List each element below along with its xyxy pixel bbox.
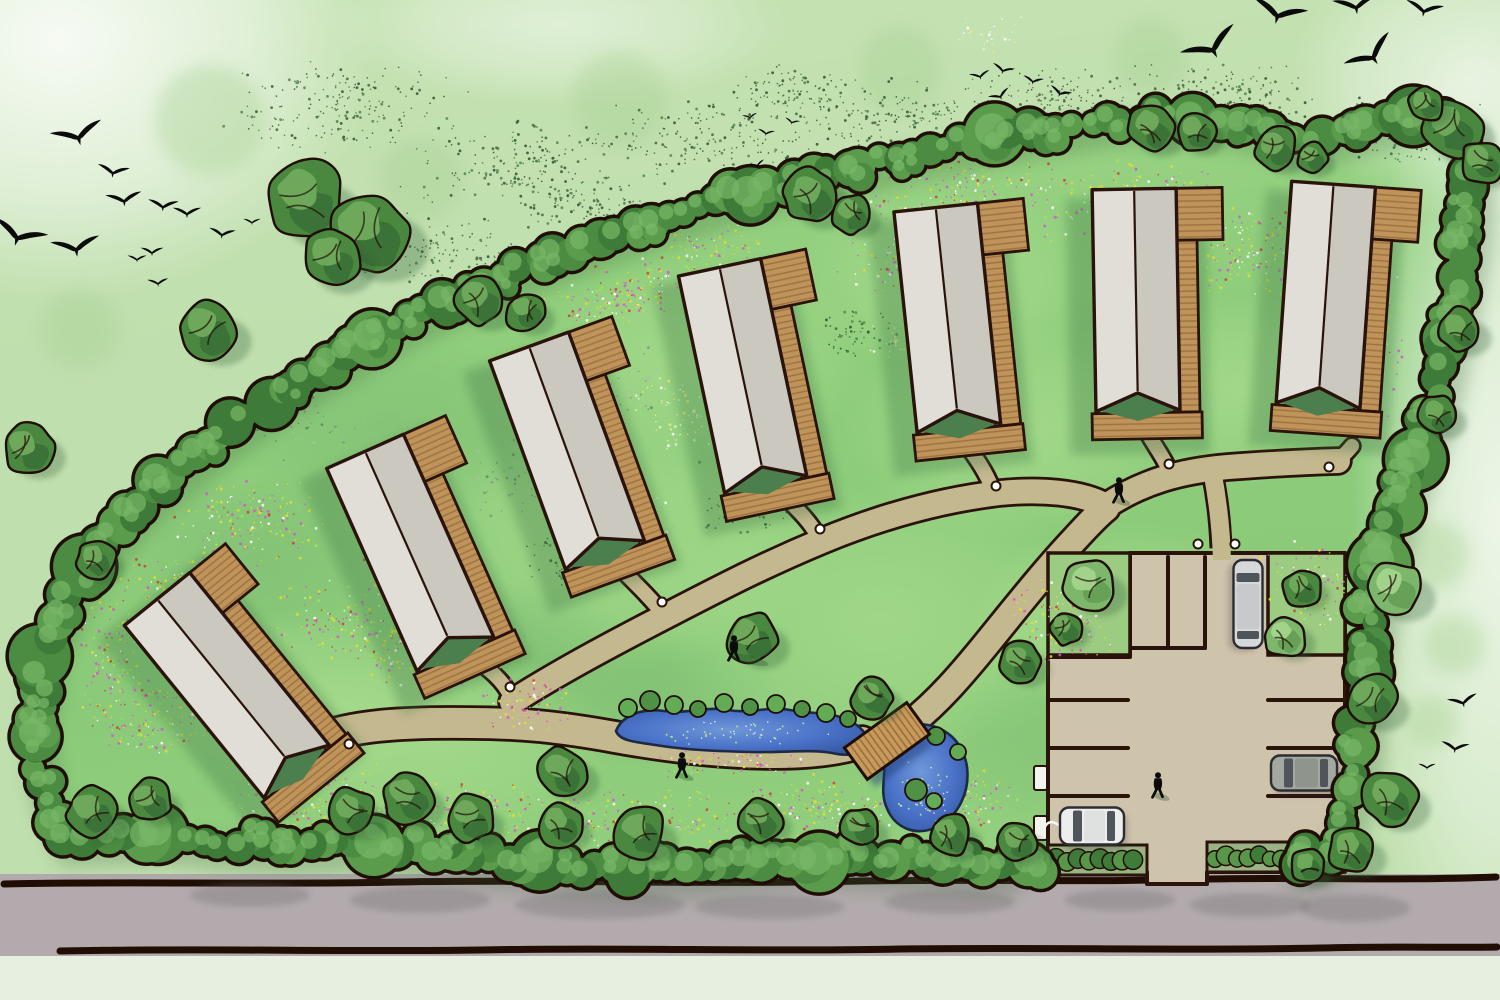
lamp-dot [1231, 540, 1240, 549]
lodge-6 [1066, 187, 1226, 454]
windshield [1237, 573, 1260, 582]
pond-vegetation [742, 699, 758, 715]
lodge-roof [1092, 189, 1138, 412]
lamp-dot [816, 525, 825, 534]
car-silver-hatchback [1229, 560, 1263, 651]
lamp-dot [1194, 540, 1203, 549]
pond-vegetation [926, 793, 942, 809]
pond-vegetation [905, 779, 927, 801]
footpath [1212, 470, 1222, 560]
lamp-dot [506, 683, 515, 692]
pond-vegetation [767, 695, 785, 713]
pond-vegetation [840, 711, 856, 727]
road [0, 874, 1500, 1000]
lamp-dot [992, 482, 1001, 491]
car-grey-estate [1271, 756, 1340, 796]
pond-vegetation [619, 699, 637, 717]
lamp-dot [345, 740, 354, 749]
road-edge-line [60, 947, 1497, 951]
car-roof [1295, 759, 1318, 788]
pond-vegetation [817, 704, 835, 722]
site-plan-canvas [0, 0, 1500, 1000]
rear-window [1320, 759, 1328, 787]
rear-window [1107, 811, 1115, 841]
site-plan-illustration [0, 0, 1500, 1000]
pond-vegetation [665, 696, 683, 714]
windshield [1073, 811, 1082, 842]
pond-vegetation [640, 691, 660, 711]
car-white-ev [1060, 808, 1127, 850]
windshield [1284, 759, 1293, 788]
car-roof [1084, 811, 1105, 842]
rear-window [1237, 631, 1259, 639]
lamp-dot [1165, 460, 1174, 469]
pond-vegetation [794, 701, 810, 717]
lamp-dot [658, 598, 667, 607]
pond-vegetation [927, 727, 945, 745]
road-edge-line [1207, 877, 1496, 879]
ev-charger [1034, 766, 1047, 790]
pond-vegetation [690, 701, 706, 717]
pond-vegetation [715, 694, 733, 712]
lamp-dot [1325, 463, 1334, 472]
pond-vegetation [950, 744, 966, 760]
lodge-roof [1134, 188, 1180, 411]
car-roof [1237, 584, 1260, 629]
